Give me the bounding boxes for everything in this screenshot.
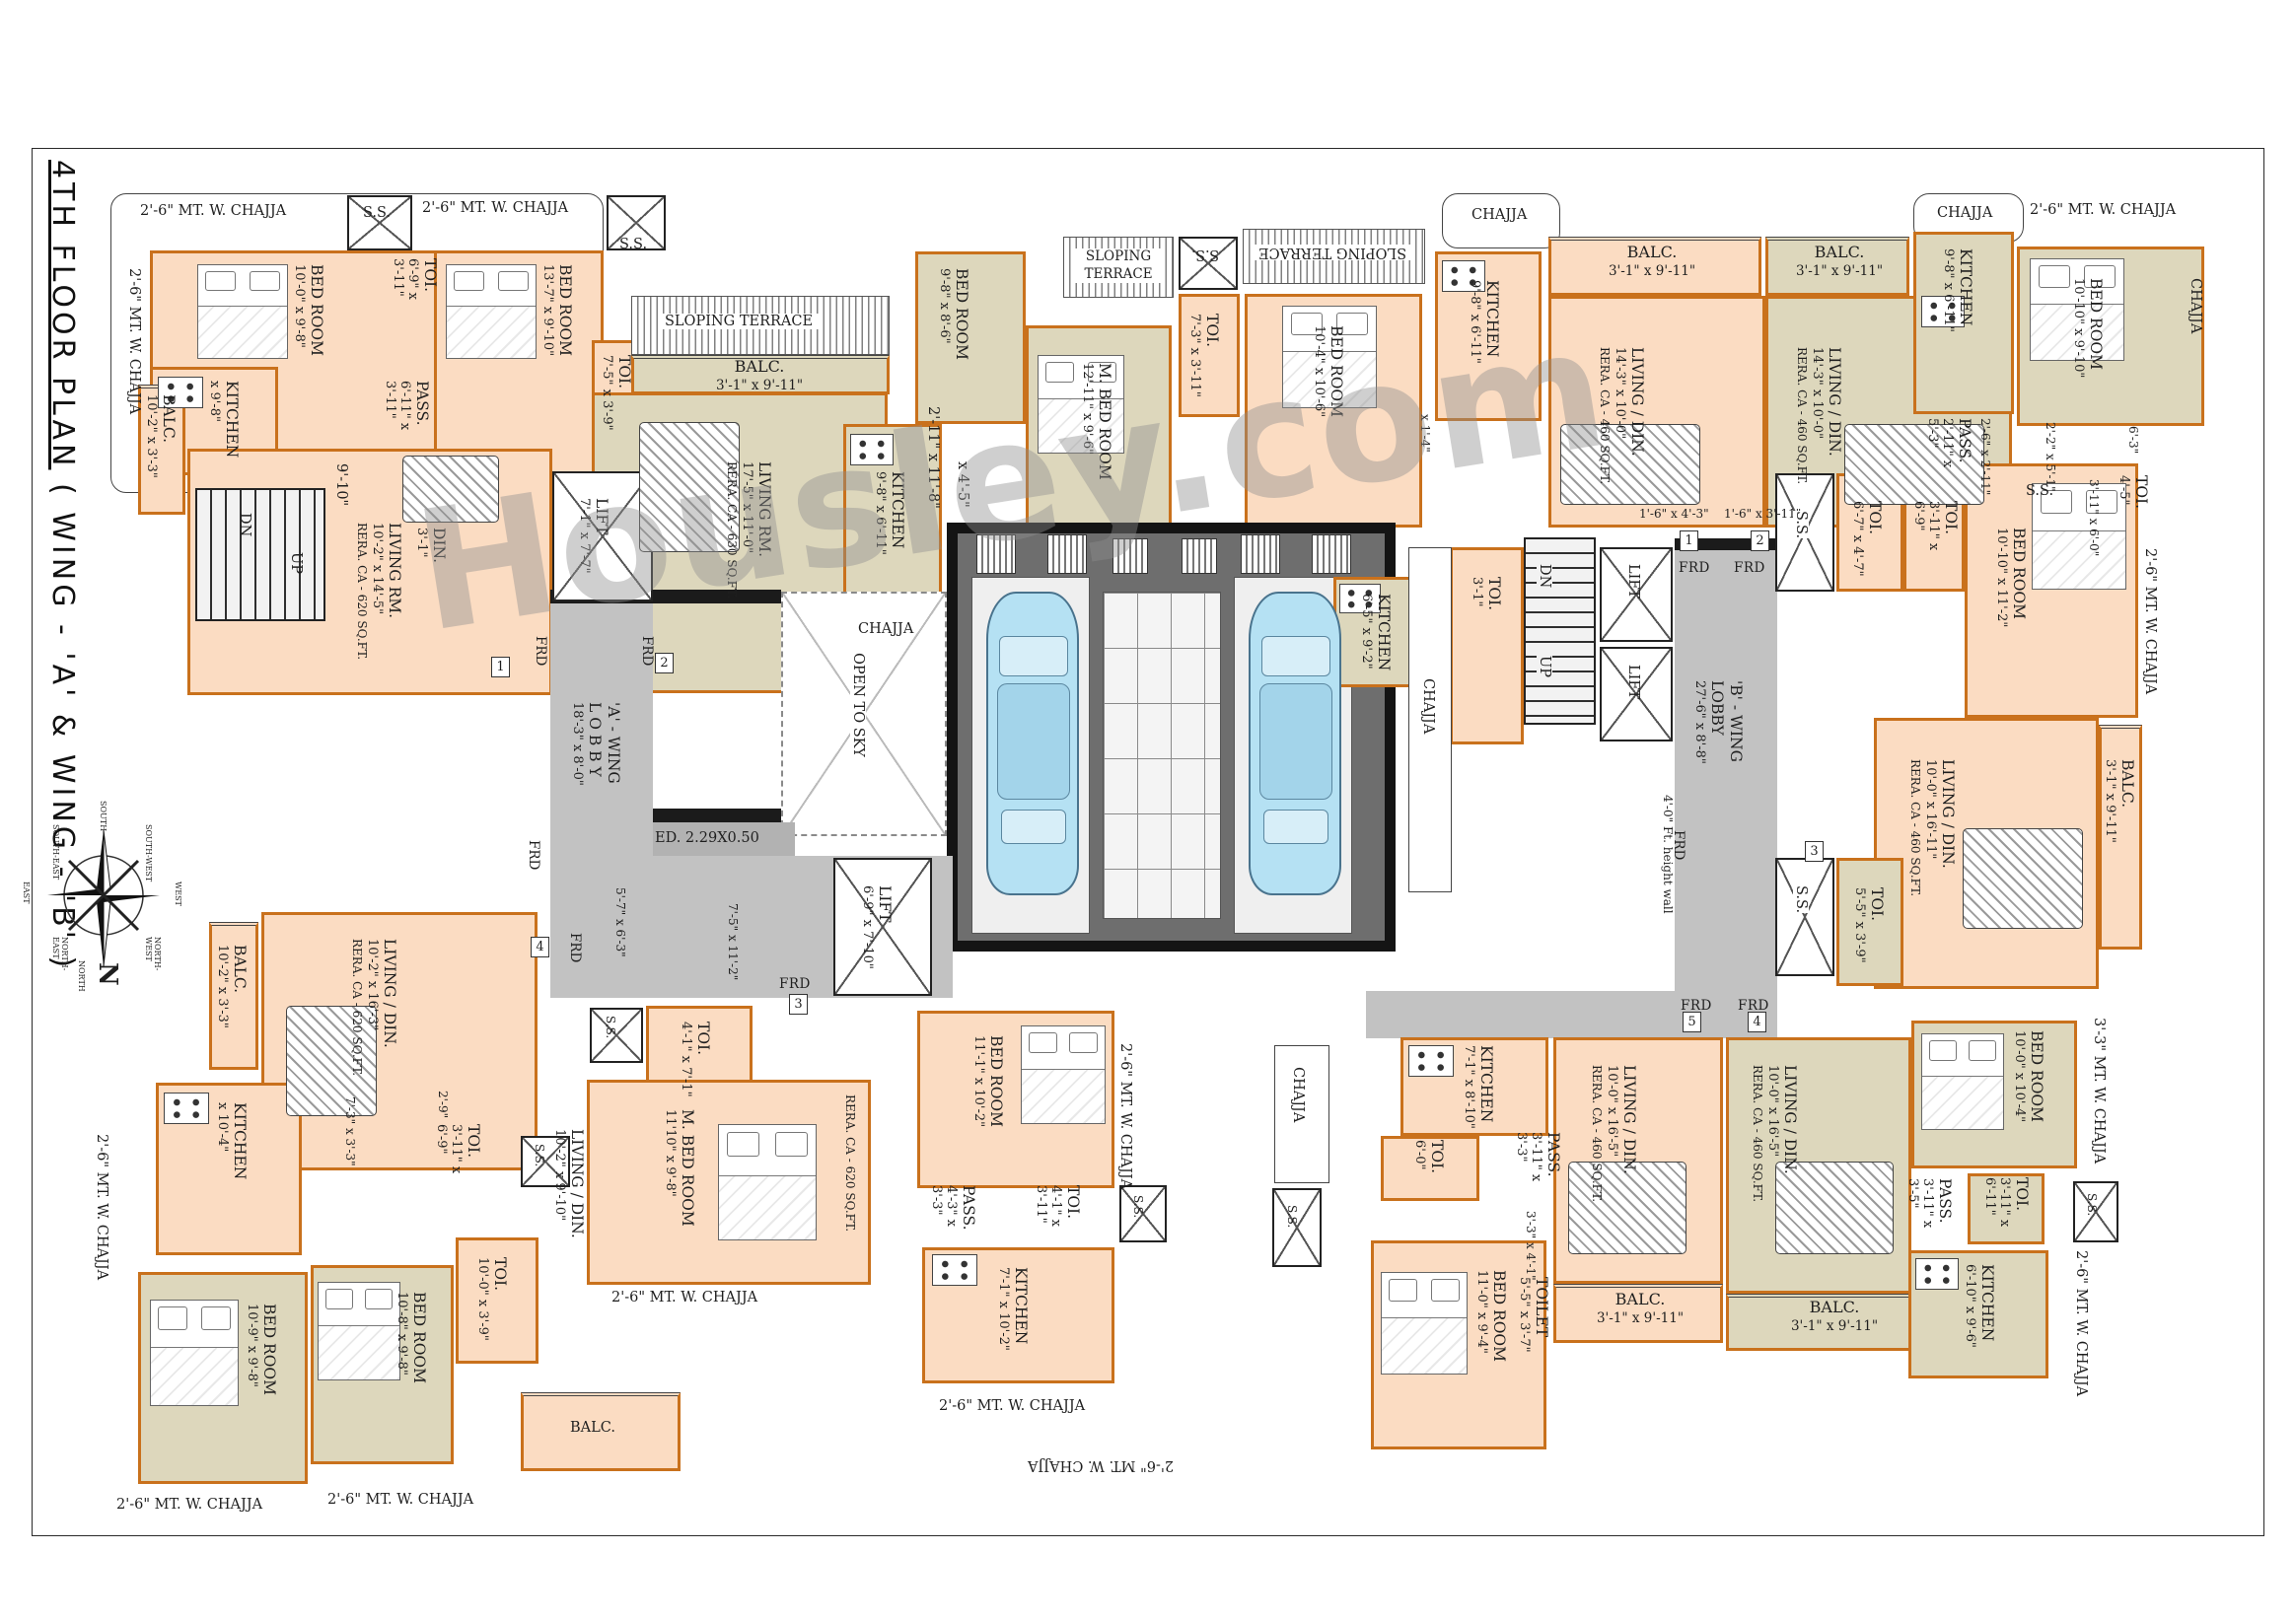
stove-a2 — [850, 434, 894, 465]
label-b3-toi1: TOI.3'-11" x 6'-9" — [1911, 501, 1960, 580]
shaft-ss-b3b — [1775, 858, 1834, 976]
label-b2-dim3: 6'-3" — [2126, 426, 2140, 454]
label-a4-dim29: 2'-9" — [436, 1091, 450, 1118]
label-sloping-1: SLOPING TERRACE — [659, 314, 819, 329]
ss-label: S.S. — [363, 205, 391, 221]
label-chajja-a3-v: 2'-6" MT. W. CHAJJA — [1117, 1043, 1133, 1189]
ss-label-a3b: S.S. — [1131, 1195, 1145, 1218]
label-b2-bed: BED ROOM10'-10" x 9'-10" — [2071, 278, 2105, 416]
label-a2-dim3: x 1'-4" — [1418, 414, 1432, 453]
label-pass-dim2: 1'-6" x 3'-11" — [1724, 507, 1801, 521]
stairs-b-up: UP — [1537, 656, 1552, 677]
unitbox-b5: 5 — [1683, 1012, 1701, 1032]
ss-label-b5: S.S. — [1285, 1205, 1299, 1228]
table-b3 — [1963, 828, 2083, 929]
label-a2-balc: BALC.3'-1" x 9'-11" — [681, 357, 838, 394]
label-a3-bed: BED ROOM11'-1" x 10'-2" — [971, 1035, 1005, 1178]
label-chajja-tr-v: CHAJJA — [2188, 278, 2203, 333]
frd-a-5: FRD — [779, 976, 811, 992]
label-chajja-a2: CHAJJA — [858, 621, 913, 637]
frd-a-2: FRD — [639, 636, 655, 666]
stairs-a-wing — [195, 488, 325, 621]
machinery-2 — [1047, 534, 1087, 574]
label-b5-dim: 3'-3" x 4'-1" — [1524, 1211, 1538, 1281]
compass-east: EAST — [22, 882, 31, 903]
label-chajja-bl1: 2'-6" MT. W. CHAJJA — [116, 1497, 262, 1513]
label-b2-dim2: 2'-2" x 5'-1" — [2044, 422, 2057, 492]
machinery-1 — [976, 534, 1016, 574]
label-b2-pass: PASS.2'-11" x 5'-3" — [1925, 418, 1973, 483]
label-a2-dim1: 2'-11" x 11'-8" — [925, 406, 941, 509]
machinery-6 — [1312, 534, 1351, 574]
label-a1-bed2: BED ROOM13'-7" x 9'-10" — [540, 264, 574, 383]
label-a2-bedtop: BED ROOM9'-8" x 8'-6" — [937, 268, 970, 379]
label-a1-living: LIVING RM.10'-2" x 14'-5"RERA. CA - 620 … — [355, 523, 403, 680]
label-b2-balc: BALC.3'-1" x 9'-11" — [1775, 243, 1903, 280]
label-b2-kitchen: KITCHEN9'-8" x 6'-11" — [1941, 248, 1974, 367]
label-b4-bed: BED ROOM10'-0" x 10'-4" — [2012, 1030, 2045, 1159]
ss-label-a4: S.S. — [533, 1144, 546, 1166]
label-b1-kitchen: KITCHEN9'-8" x 6'-11" — [1468, 280, 1501, 402]
label-a4-living: LIVING / DIN.10'-2" x 16'-3"RERA. CA - 6… — [350, 939, 398, 1116]
label-a3-kitchen: KITCHEN7'-1" x 10'-2" — [996, 1267, 1030, 1376]
label-lift-a1: LIFT7'-1" x 7'-7" — [577, 498, 610, 577]
label-b1-living: LIVING / DIN.14'-3" x 10'-0"RERA. CA - 4… — [1598, 347, 1646, 520]
shaft-ss-a2b — [1179, 237, 1238, 290]
compass-west: WEST — [174, 882, 182, 906]
label-ed: ED. 2.29X0.50 — [655, 830, 759, 846]
bed-a3-m — [718, 1124, 817, 1240]
compass-south: SOUTH — [99, 801, 108, 831]
car-2 — [1249, 592, 1341, 895]
stairs-a-up: UP — [288, 552, 304, 574]
label-a2-toi-a: TOI.7'-5" x 3'-9" — [600, 355, 633, 444]
bed-a4-1 — [150, 1300, 239, 1406]
label-b5-pass: PASS.3'-11" x 3'-3" — [1514, 1132, 1562, 1211]
label-a1-toi: TOI.6'-9" x 3'-11" — [391, 258, 439, 341]
frd-a-3: FRD — [526, 840, 541, 870]
label-chajja-b2: CHAJJA — [1937, 205, 1992, 221]
unitbox-b1: 1 — [1680, 530, 1698, 551]
compass-n: N — [93, 962, 122, 986]
label-b4-living: LIVING / DIN.10'-0" x 16'-5"RERA. CA - 4… — [1751, 1065, 1799, 1242]
frd-b-1: FRD — [1679, 560, 1710, 576]
label-open-to-sky: OPEN TO SKY — [850, 653, 866, 757]
stove-a4 — [164, 1093, 209, 1124]
label-a1-pass: PASS.6'-11" x 3'-11" — [383, 381, 431, 471]
machinery-3 — [1112, 538, 1148, 574]
label-b4-toi: TOI.3'-11" x 6'-11" — [1982, 1177, 2031, 1242]
label-chajja-mid: CHAJJA — [1420, 678, 1436, 734]
label-a1-kitchen: KITCHENx 9'-8" — [207, 381, 241, 469]
label-a2-kitchen: KITCHEN9'-8" x 6'-11" — [873, 471, 906, 590]
label-a3-rera: RERA. CA - 620 SQ.FT. — [843, 1094, 857, 1232]
stairs-a-dn: DN — [237, 513, 252, 536]
label-a4-pass-dim: 7'-3" x 3'-3" — [343, 1096, 357, 1166]
label-a3-toi2: TOI.4'-1" x 3'-11" — [1034, 1185, 1082, 1256]
label-a2-toib: TOI.7'-3" x 3'-11" — [1187, 314, 1221, 402]
label-a2-bed: BED ROOM10'-4" x 10'-6" — [1312, 325, 1345, 463]
unitbox-b4: 4 — [1748, 1012, 1766, 1032]
label-a3-toi1: TOI.4'-1" x 7'-1" — [679, 1022, 712, 1100]
label-b2-toi: TOI.4'-5" — [2117, 475, 2150, 530]
frd-a-4: FRD — [567, 933, 583, 962]
stairs-b-wing — [1524, 537, 1596, 725]
label-chajja-bl2: 2'-6" MT. W. CHAJJA — [327, 1492, 473, 1508]
floor-plan: 4TH FLOOR PLAN ( WING - 'A' & WING - 'B'… — [0, 0, 2296, 1623]
chajja-left-v: 2'-6" MT. W. CHAJJA — [126, 268, 142, 414]
compass-northeast: NORTH-EAST — [51, 937, 69, 984]
ss-label-a2b: S.S. — [1191, 247, 1219, 262]
unitbox-a1: 1 — [491, 657, 510, 677]
unitbox-a3: 3 — [789, 994, 808, 1015]
label-b3-chajja-v: 2'-6" MT. W. CHAJJA — [2142, 548, 2158, 694]
label-b2-toi-dim: 3'-11" x 6'-0" — [2087, 479, 2101, 556]
unitbox-a2: 2 — [655, 653, 674, 673]
label-b4-balc: BALC.3'-1" x 9'-11" — [1765, 1298, 1903, 1335]
frd-b-3: FRD — [1671, 830, 1686, 860]
stove-b4 — [1915, 1258, 1959, 1290]
car-1 — [986, 592, 1079, 895]
machinery-5 — [1241, 534, 1280, 574]
label-a4-toi1: TOI.3'-11" x 6'-9" — [434, 1124, 482, 1203]
label-b2-living: LIVING / DIN.14'-3" x 10'-0"RERA. CA - 4… — [1795, 347, 1843, 520]
label-chajja-rev: 2'-6" MT. W. CHAJJA — [1028, 1457, 1174, 1473]
label-b4-chajja26: 2'-6" MT. W. CHAJJA — [2073, 1250, 2089, 1396]
title-main: 4TH FLOOR PLAN — [45, 160, 80, 469]
ss-label-b2: S.S. — [2026, 483, 2053, 499]
bed-a1b — [446, 264, 537, 359]
label-a4-balc: BALC.10'-2" x 3'-3" — [215, 945, 249, 1055]
label-a4-toi2: TOI.10'-0" x 3'-9" — [475, 1257, 509, 1351]
label-b5-balc: BALC.3'-1" x 9'-11" — [1576, 1290, 1704, 1327]
bed-b5 — [1381, 1272, 1468, 1375]
chajja-topleft-2: 2'-6" MT. W. CHAJJA — [422, 200, 568, 216]
label-chajja-a3bot: 2'-6" MT. W. CHAJJA — [939, 1398, 1085, 1414]
label-lift-b2: LIFT — [1625, 665, 1641, 699]
stove-a3 — [932, 1254, 977, 1286]
label-chajja-tr: 2'-6" MT. W. CHAJJA — [2030, 202, 2176, 218]
label-a3-balc: BALC. — [570, 1420, 615, 1436]
label-b5-kitchen: KITCHEN7'-1" x 8'-10" — [1462, 1045, 1495, 1134]
b-concourse — [1366, 991, 1777, 1038]
compass-southwest: SOUTH-WEST — [144, 824, 153, 882]
label-a2-mbed: M. BED ROOM12'-11" x 9'-6" — [1080, 363, 1113, 501]
label-b4-pass: PASS.3'-11" x 3'-5" — [1905, 1178, 1954, 1249]
label-a2-dim2: x 4'-5" — [955, 461, 970, 508]
label-a4-bed1: BED ROOM10'-9" x 9'-8" — [245, 1304, 278, 1451]
label-lift-b1: LIFT — [1625, 564, 1641, 599]
unitbox-b2: 2 — [1751, 530, 1769, 551]
label-a1-din: DIN.3'-1" — [414, 528, 448, 593]
ss-label-a2: S.S. — [619, 237, 647, 252]
compass-southeast: SOUTH-EAST — [51, 824, 60, 880]
car-platform-empty — [1103, 592, 1221, 919]
bed-a4-2 — [318, 1282, 400, 1380]
label-b-lobby: 'B' - WINGLOBBY27'-6" x 8'-8" — [1692, 680, 1745, 848]
label-b4-kitchen: KITCHEN6'-10" x 9'-6" — [1963, 1264, 1996, 1373]
label-a3-pass: PASS.4'-3" x 3'-3" — [929, 1185, 977, 1256]
label-sloping-3: SLOPING TERRACE — [1255, 245, 1410, 260]
label-a1-bed1: BED ROOM10'-0" x 9'-8" — [292, 264, 325, 375]
label-chajja-b1: CHAJJA — [1471, 207, 1527, 223]
bed-a1 — [197, 264, 288, 359]
machinery-4 — [1182, 538, 1217, 574]
chajja-topleft-1: 2'-6" MT. W. CHAJJA — [140, 203, 286, 219]
label-chajja-b5: CHAJJA — [1290, 1067, 1306, 1122]
frd-b-2: FRD — [1734, 560, 1765, 576]
label-a-lobby: 'A' - WINGL O B B Y18'-3" x 8'-0" — [570, 702, 622, 880]
label-a1-din-dim: 9'-10" — [333, 463, 349, 506]
label-b-toi-small: TOI.3'-1" — [1470, 577, 1503, 646]
label-b5-bed: BED ROOM11'-0" x 9'-4" — [1474, 1270, 1508, 1413]
ss-label-b3a: S.S. — [1793, 511, 1809, 538]
bed-a3 — [1021, 1025, 1106, 1124]
bed-b4 — [1921, 1033, 2004, 1130]
label-sloping-2: SLOPINGTERRACE — [1073, 248, 1164, 283]
label-a-dim2: 7'-5" x 11'-2" — [726, 903, 740, 980]
label-a1-balc: BALC.10'-2" x 3'-3" — [144, 394, 178, 505]
room-a2-bedtop — [915, 251, 1026, 424]
label-b3-kitchen: KITCHEN6'-5" x 9'-2" — [1359, 594, 1393, 682]
label-b5-living: LIVING / DIN.10'-0" x 16'-5"RERA. CA - 4… — [1590, 1065, 1638, 1242]
stairs-b-dn: DN — [1537, 564, 1552, 588]
label-b3-balc: BALC.3'-1" x 9'-11" — [2103, 759, 2136, 887]
label-b5-toilet: TOILET5'-5" x 3'-7" — [1517, 1277, 1550, 1385]
bed-b3 — [2032, 483, 2126, 590]
ss-label-a3a: S.S. — [604, 1016, 617, 1038]
label-b3-toi2: TOI.6'-7" x 4'-7" — [1850, 501, 1884, 580]
label-a2-living: LIVING RM.17'-5" x 11'-0"RERA. CA - 630 … — [725, 461, 773, 649]
label-b1-balc: BALC.3'-1" x 9'-11" — [1578, 243, 1726, 280]
label-chajja-bl-v: 2'-6" MT. W. CHAJJA — [94, 1134, 109, 1280]
label-chajja-a3mid: 2'-6" MT. W. CHAJJA — [611, 1290, 757, 1305]
label-pass-dim1: 1'-6" x 4'-3" — [1639, 507, 1709, 521]
label-a4-bed2: BED ROOM10'-8" x 9'-8" — [395, 1292, 428, 1435]
label-b4-chajja33: 3'-3" MT. W. CHAJJA — [2091, 1018, 2107, 1164]
label-b3-toi3: TOI.5'-5" x 3'-9" — [1852, 887, 1886, 971]
wall-ed-bottom — [651, 809, 781, 822]
ss-label-b4: S.S. — [2085, 1193, 2099, 1216]
label-a4-kitchen: KITCHENx 10'-4" — [215, 1102, 249, 1240]
compass-northwest: NORTH-WEST — [144, 937, 162, 984]
shaft-ss-a1 — [347, 195, 412, 250]
unitbox-a4: 4 — [531, 937, 549, 957]
compass-north: NORTH — [77, 960, 86, 992]
compass: N SOUTH SOUTH-EAST EAST NORTH-EAST NORTH… — [30, 816, 178, 984]
stove-b5 — [1408, 1045, 1454, 1077]
label-b5-toi: TOI.6'-0" — [1412, 1140, 1446, 1197]
ss-label-b3b: S.S. — [1793, 885, 1809, 913]
label-b3-bed: BED ROOM10'-10" x 11'-2" — [1994, 528, 2028, 675]
label-a3-living: LIVING / DIN.10'-2" x 9'-10" — [552, 1129, 586, 1272]
frd-a-1: FRD — [533, 636, 548, 666]
label-b2-dim1: 2'-6" x 2'-11" — [1978, 418, 1992, 495]
label-a3-mbed: M. BED ROOM11'10" x 9'-8" — [663, 1109, 696, 1272]
unitbox-b3: 3 — [1805, 841, 1824, 862]
label-a-dim1: 5'-7" x 6'-3" — [613, 887, 627, 957]
label-b3-living: LIVING / DIN.10'-0" x 16'-11"RERA. CA - … — [1908, 759, 1957, 942]
label-lift-a2: LIFT6'-9" x 7'-10" — [860, 885, 894, 970]
